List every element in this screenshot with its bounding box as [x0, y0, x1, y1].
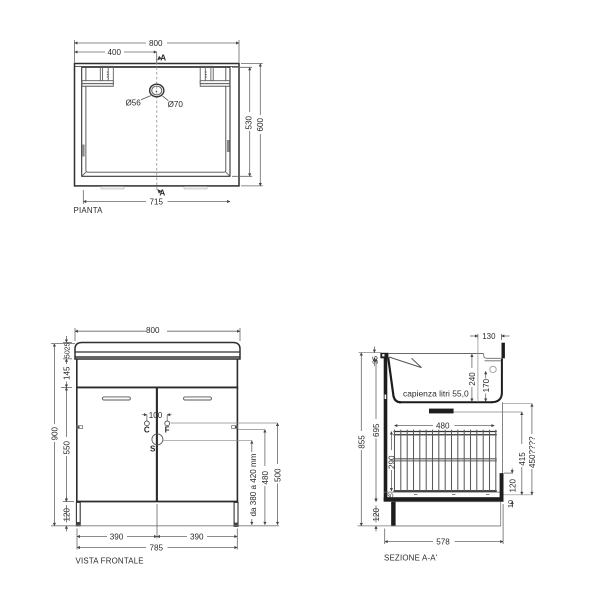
svg-text:A: A — [159, 188, 165, 197]
svg-text:290: 290 — [388, 455, 397, 469]
svg-text:450????: 450???? — [528, 436, 537, 468]
svg-text:PIANTA: PIANTA — [74, 206, 104, 215]
svg-text:715: 715 — [150, 198, 164, 207]
svg-text:855: 855 — [357, 435, 366, 449]
svg-text:600: 600 — [256, 117, 265, 131]
svg-text:145: 145 — [63, 366, 72, 380]
svg-text:800: 800 — [149, 39, 163, 48]
svg-text:785: 785 — [150, 544, 164, 553]
svg-text:578: 578 — [436, 538, 450, 547]
svg-text:170: 170 — [482, 378, 491, 392]
svg-text:240: 240 — [468, 372, 477, 386]
svg-text:530: 530 — [245, 115, 254, 129]
svg-text:SEZIONE A-A': SEZIONE A-A' — [384, 554, 438, 563]
svg-text:120: 120 — [63, 507, 72, 521]
svg-text:120: 120 — [372, 507, 381, 521]
svg-text:da 380 a 420 mm: da 380 a 420 mm — [249, 453, 258, 516]
svg-text:A: A — [160, 53, 166, 62]
svg-text:Ø56: Ø56 — [126, 99, 142, 108]
svg-text:capienza litri 55,0: capienza litri 55,0 — [403, 388, 469, 398]
svg-text:25: 25 — [370, 356, 379, 364]
svg-text:120: 120 — [508, 478, 517, 492]
svg-text:900: 900 — [51, 426, 60, 440]
svg-text:VISTA FRONTALE: VISTA FRONTALE — [76, 557, 144, 566]
svg-text:Ø70: Ø70 — [168, 100, 184, 109]
svg-text:500: 500 — [274, 468, 283, 482]
svg-text:390: 390 — [190, 533, 204, 542]
svg-text:F: F — [165, 425, 170, 434]
svg-text:30: 30 — [387, 493, 394, 500]
svg-text:415: 415 — [518, 452, 527, 466]
svg-text:400: 400 — [108, 48, 122, 57]
svg-text:390: 390 — [110, 533, 124, 542]
svg-text:480: 480 — [261, 470, 270, 484]
svg-text:130: 130 — [482, 332, 496, 341]
svg-text:C: C — [144, 425, 150, 434]
svg-text:480: 480 — [436, 422, 450, 431]
svg-text:S: S — [150, 445, 156, 454]
svg-text:550: 550 — [63, 440, 72, 454]
svg-text:100: 100 — [149, 411, 163, 420]
svg-text:695: 695 — [372, 423, 381, 437]
svg-text:10: 10 — [506, 500, 515, 508]
svg-text:800: 800 — [146, 326, 160, 335]
svg-text:50: 50 — [63, 350, 72, 358]
